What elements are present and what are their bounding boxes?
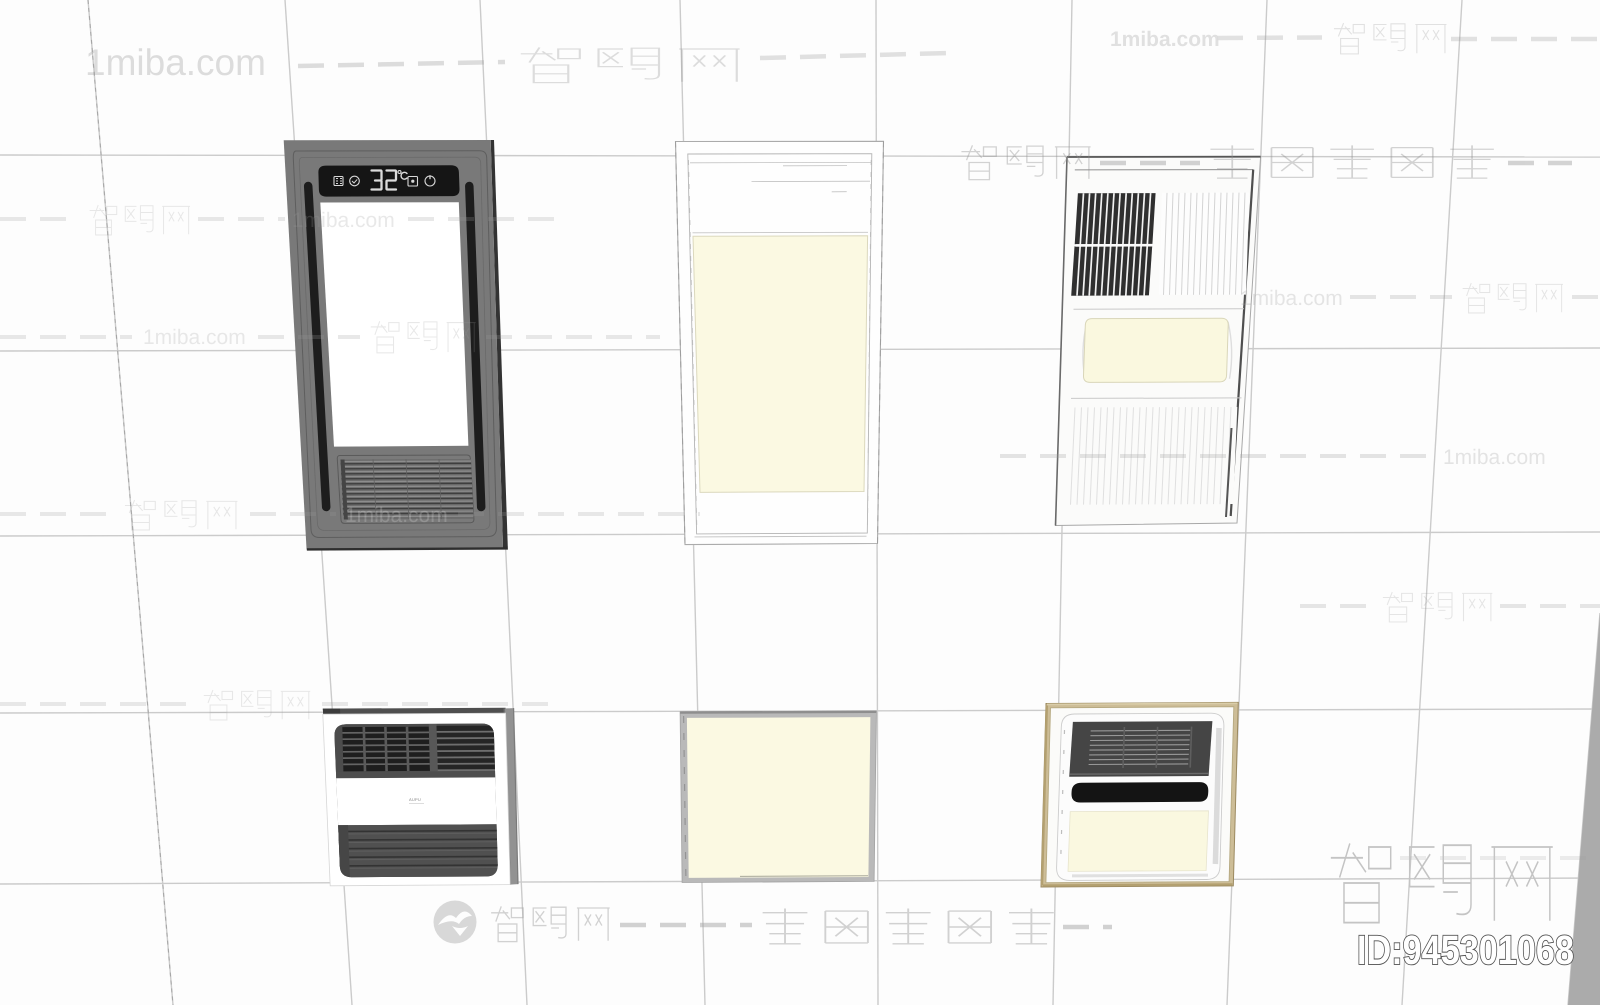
svg-text:ID:945301068: ID:945301068 bbox=[1357, 927, 1574, 973]
svg-text:1miba.com: 1miba.com bbox=[1110, 28, 1220, 51]
svg-text:1miba.com: 1miba.com bbox=[345, 504, 448, 527]
svg-text:1miba.com: 1miba.com bbox=[1240, 287, 1343, 310]
svg-text:1miba.com: 1miba.com bbox=[143, 326, 246, 349]
svg-text:1miba.com: 1miba.com bbox=[1443, 446, 1546, 469]
svg-text:1miba.com: 1miba.com bbox=[292, 209, 395, 232]
svg-text:1miba.com: 1miba.com bbox=[85, 42, 266, 83]
svg-text:AUPU: AUPU bbox=[409, 797, 421, 802]
